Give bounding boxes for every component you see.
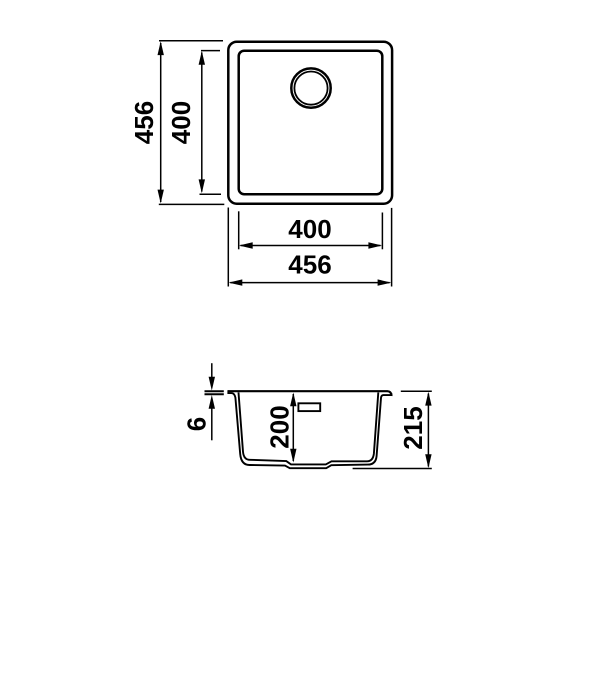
- svg-text:400: 400: [166, 101, 196, 144]
- svg-text:215: 215: [398, 406, 428, 449]
- svg-text:456: 456: [288, 249, 331, 279]
- svg-text:456: 456: [129, 101, 159, 144]
- svg-text:6: 6: [181, 417, 211, 431]
- svg-text:400: 400: [288, 214, 331, 244]
- svg-text:200: 200: [264, 405, 294, 448]
